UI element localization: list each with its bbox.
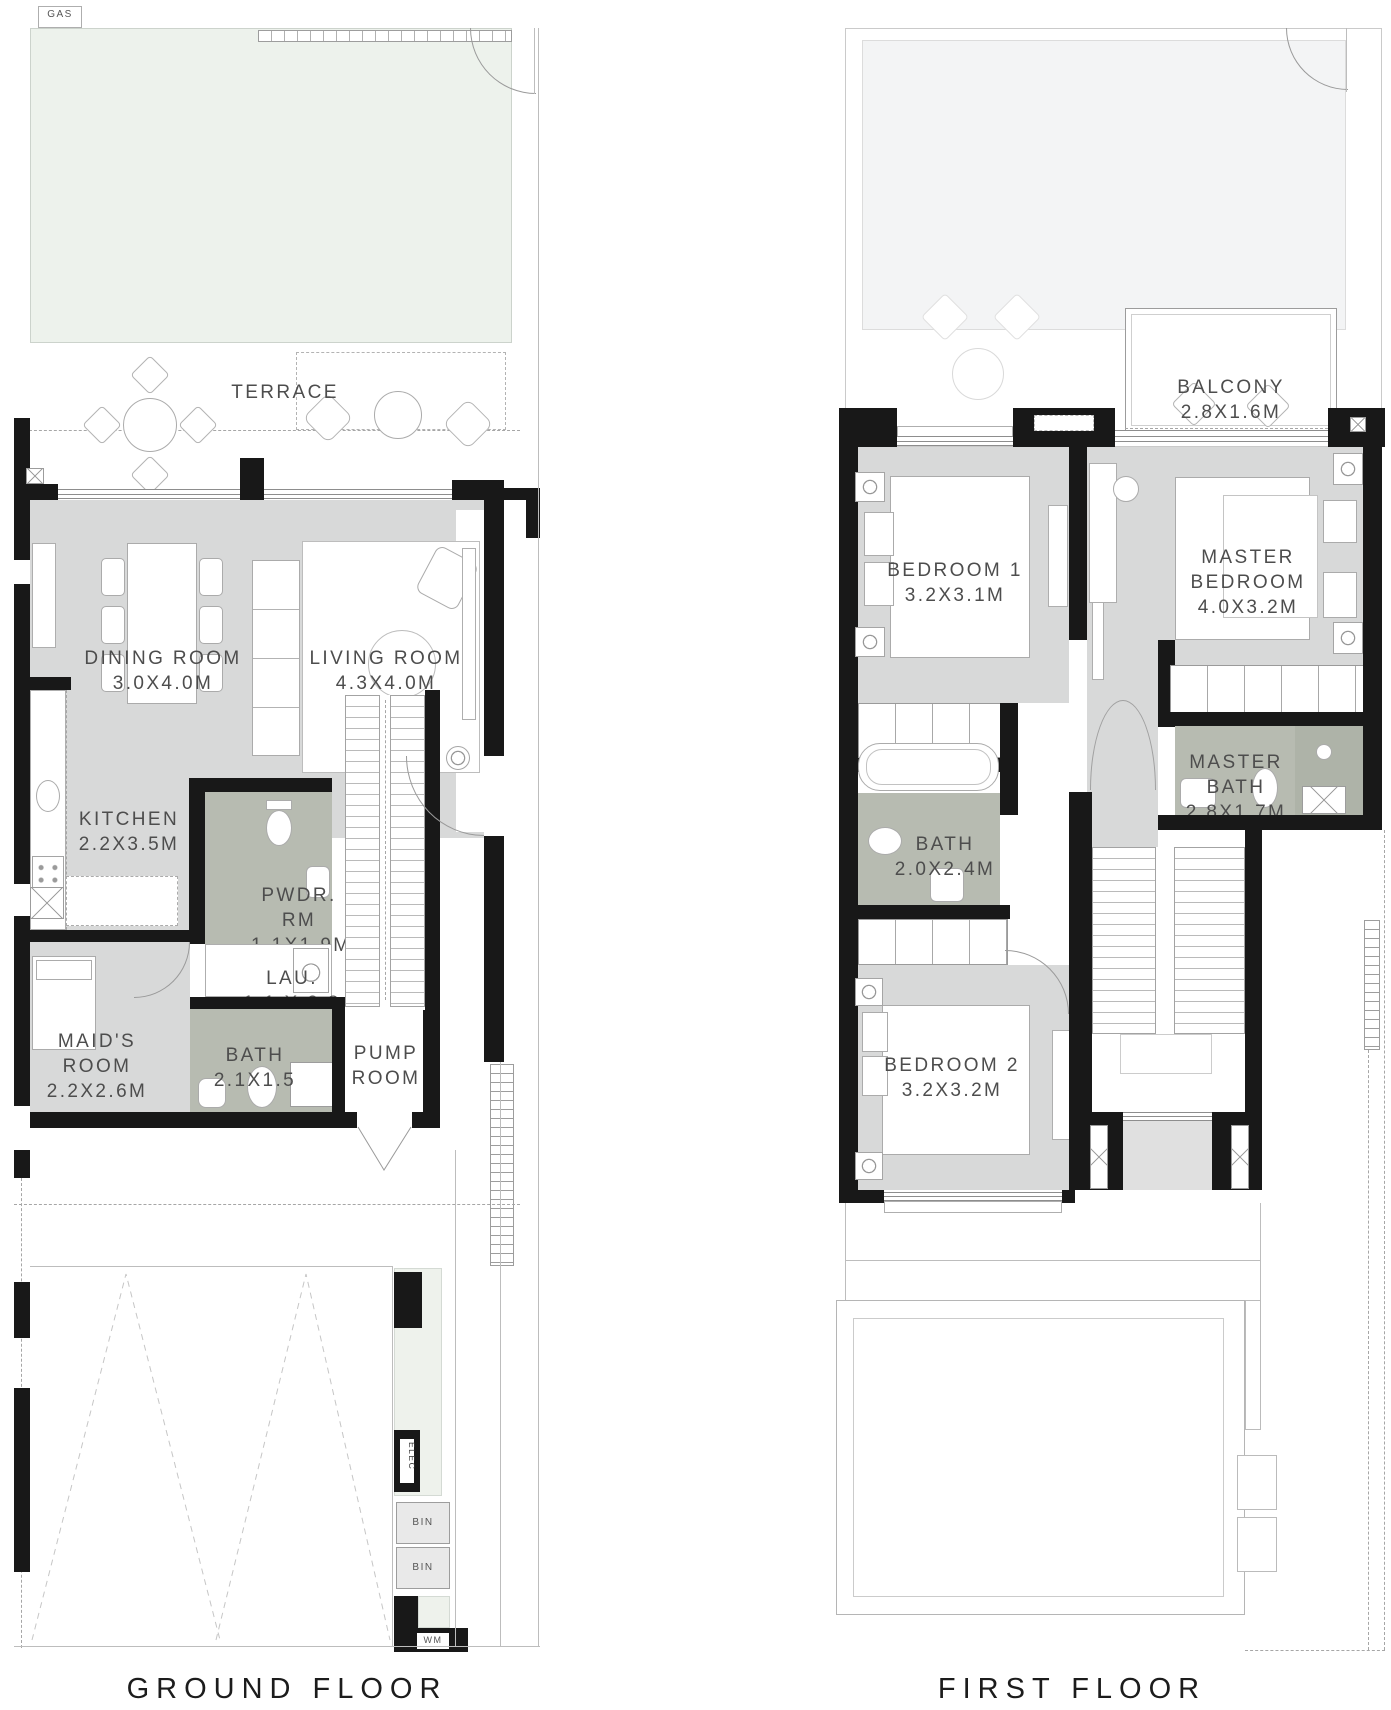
first-floor-plan: BALCONY 2.8X1.6M BEDROOM 1 3.2X3.1M [560,0,1391,1710]
bedroom1-name: BEDROOM 1 [887,560,1023,581]
vent-box [1034,415,1094,431]
connector-line [1260,1203,1261,1300]
bath-dims: 2.1X1.5 [214,1068,296,1093]
kitchen-sink [36,780,60,812]
desk [1052,1030,1070,1140]
trellis-strip [1364,920,1380,1050]
boundary-dashed [1368,1050,1369,1650]
master-bedroom-name: MASTER BEDROOM [1191,547,1306,593]
maids-room-dims: 2.2X2.6M [41,1079,153,1104]
terrace-coffee-table [374,391,422,439]
column [1090,1125,1108,1189]
tv-console [462,548,476,720]
bedroom2-dims: 3.2X3.2M [884,1078,1020,1103]
wall-right [1363,447,1382,815]
dining-room-dims: 3.0X4.0M [84,671,241,696]
stool [1113,476,1139,502]
bath1-dims: 2.0X2.4M [895,857,996,882]
maids-room-label: MAID'S ROOM 2.2X2.6M [41,1004,153,1129]
terrace-chair [130,355,170,395]
dining-chair [101,558,125,596]
bath1-name: BATH [916,834,975,855]
wall-left [14,1282,30,1338]
wall-segment [394,1272,422,1328]
sliding-window [58,489,240,499]
toilet [266,800,292,810]
bedroom2-label: BEDROOM 2 3.2X3.2M [884,1028,1020,1128]
kitchen-dims: 2.2X3.5M [79,832,180,857]
wall-left [839,447,858,1190]
floor-shaft [30,887,64,919]
wall-south [30,1112,357,1128]
boundary-dashed [1384,830,1385,1650]
powder-room-name: PWDR. RM [261,885,336,931]
desk [1048,505,1068,607]
bath-label: BATH 2.1X1.5 [214,1018,296,1118]
ac-vent-icon [855,627,885,657]
gas-label: GAS [47,9,73,20]
wall-right [484,836,504,1062]
elec-label: ELEC [407,1442,417,1470]
living-room-name: LIVING ROOM [309,648,462,669]
wall-corridor [1069,447,1087,640]
bin-label: BIN [412,1562,433,1573]
wm-label: WM [424,1635,443,1645]
roof-door-leaf [1346,28,1347,92]
landing-line [1120,1034,1212,1074]
wall-left [14,1150,30,1178]
ground-floor-title: GROUND FLOOR [127,1673,448,1706]
window [884,1192,1062,1201]
ghost-table [952,348,1004,400]
bedroom1-label: BEDROOM 1 3.2X3.1M [887,533,1023,633]
gate-door-leaf [534,28,535,94]
roof-box [1237,1517,1277,1572]
driveway-dashed-line [14,1204,520,1205]
master-bedroom-dims: 4.0X3.2M [1156,595,1341,620]
sofa [252,560,300,756]
wall-south [1062,1190,1075,1203]
master-bath-name: MASTER BATH [1189,752,1283,798]
ac-vent-icon [855,472,885,502]
wall-segment [839,408,897,447]
roof-box [1237,1455,1277,1510]
terrace-chair [178,405,218,445]
balcony-dims: 2.8X1.6M [1177,400,1285,425]
stair-rail [1155,847,1175,1040]
bedroom2-name: BEDROOM 2 [884,1055,1020,1076]
maids-pillow [36,960,92,980]
wall-segment [14,677,71,690]
plot-bottom-line [14,1646,540,1647]
stair-guide [385,700,386,1000]
wall-segment [189,778,332,792]
bedroom2-door-arc [1005,950,1069,1014]
connector-line [845,1203,846,1300]
garage-roof-inner [853,1318,1224,1597]
shower-tray [290,1062,333,1107]
ac-vent-icon [1333,453,1363,485]
wall-left [14,418,30,560]
wall-segment [839,905,1010,919]
sideboard [32,543,56,648]
plot-right-line [538,28,539,1646]
ac-vent-icon [855,978,883,1006]
bedroom1-dims: 3.2X3.1M [887,583,1023,608]
kitchen-name: KITCHEN [79,809,179,830]
column [1231,1125,1249,1189]
green-patch [418,1596,450,1628]
garage-right-line [392,1266,393,1646]
bin-label: BIN [412,1517,433,1528]
trellis-strip [490,1064,514,1266]
garage-top-line [30,1266,392,1267]
wall-vent-box [26,468,44,484]
wall-segment [27,930,190,942]
wall-right [484,507,504,756]
kitchen-island [66,876,178,926]
balcony-name: BALCONY [1177,377,1285,398]
bathtub-inner [866,749,991,785]
roof-line [845,1260,1260,1261]
roof-ledge [1245,1300,1261,1430]
master-bath-label: MASTER BATH 2.8X1.7M [1159,725,1314,850]
roof-panel [862,40,1346,330]
window [1123,1112,1212,1121]
wall-segment [1158,660,1170,720]
laundry-name: LAU. [266,968,318,989]
light-shaft [1123,1121,1212,1190]
floor-plan-sheet: GAS TERRACE [0,0,1391,1710]
bath1-label: BATH 2.0X2.4M [895,807,996,907]
toilet [266,810,292,846]
sliding-window [264,489,452,499]
passage-line [500,1062,501,1646]
pump-room-name: PUMP ROOM [352,1043,421,1089]
terrace-chair [82,405,122,445]
wall-left [14,1388,30,1572]
pump-door-leaves [357,1126,412,1172]
dining-room-name: DINING ROOM [84,648,241,669]
window [897,436,1013,446]
dining-chair [199,558,223,596]
passage-line [455,1150,456,1646]
ground-floor-plan: GAS TERRACE [0,0,560,1710]
lawn-area [30,28,512,343]
dining-room-label: DINING ROOM 3.0X4.0M [84,621,241,721]
wall-left [14,916,30,1106]
kitchen-label: KITCHEN 2.2X3.5M [79,782,180,882]
master-bedroom-label: MASTER BEDROOM 4.0X3.2M [1156,520,1341,645]
wall-vent-box [1350,417,1366,432]
wall-segment [189,792,205,944]
wardrobe [1170,665,1367,715]
wall-south [839,1190,884,1203]
wardrobe [858,919,1008,965]
wall-segment [1158,815,1382,830]
bath-name: BATH [226,1045,285,1066]
wall-segment [1158,712,1382,726]
ac-vent-icon [855,1152,883,1180]
window-sill [884,1201,1062,1213]
pedestal-sink [1316,744,1332,760]
first-floor-title: FIRST FLOOR [938,1673,1206,1706]
boundary-dashed-bottom [1245,1650,1385,1651]
wall-left [14,584,30,884]
terrace-dining-table [123,398,177,452]
car-space-marks [30,1268,392,1642]
maids-room-name: MAID'S ROOM [58,1031,136,1077]
wall-segment [504,488,540,500]
terrace-label: TERRACE [231,380,339,405]
balcony-french-door [1115,430,1328,442]
wall-segment [189,997,345,1009]
